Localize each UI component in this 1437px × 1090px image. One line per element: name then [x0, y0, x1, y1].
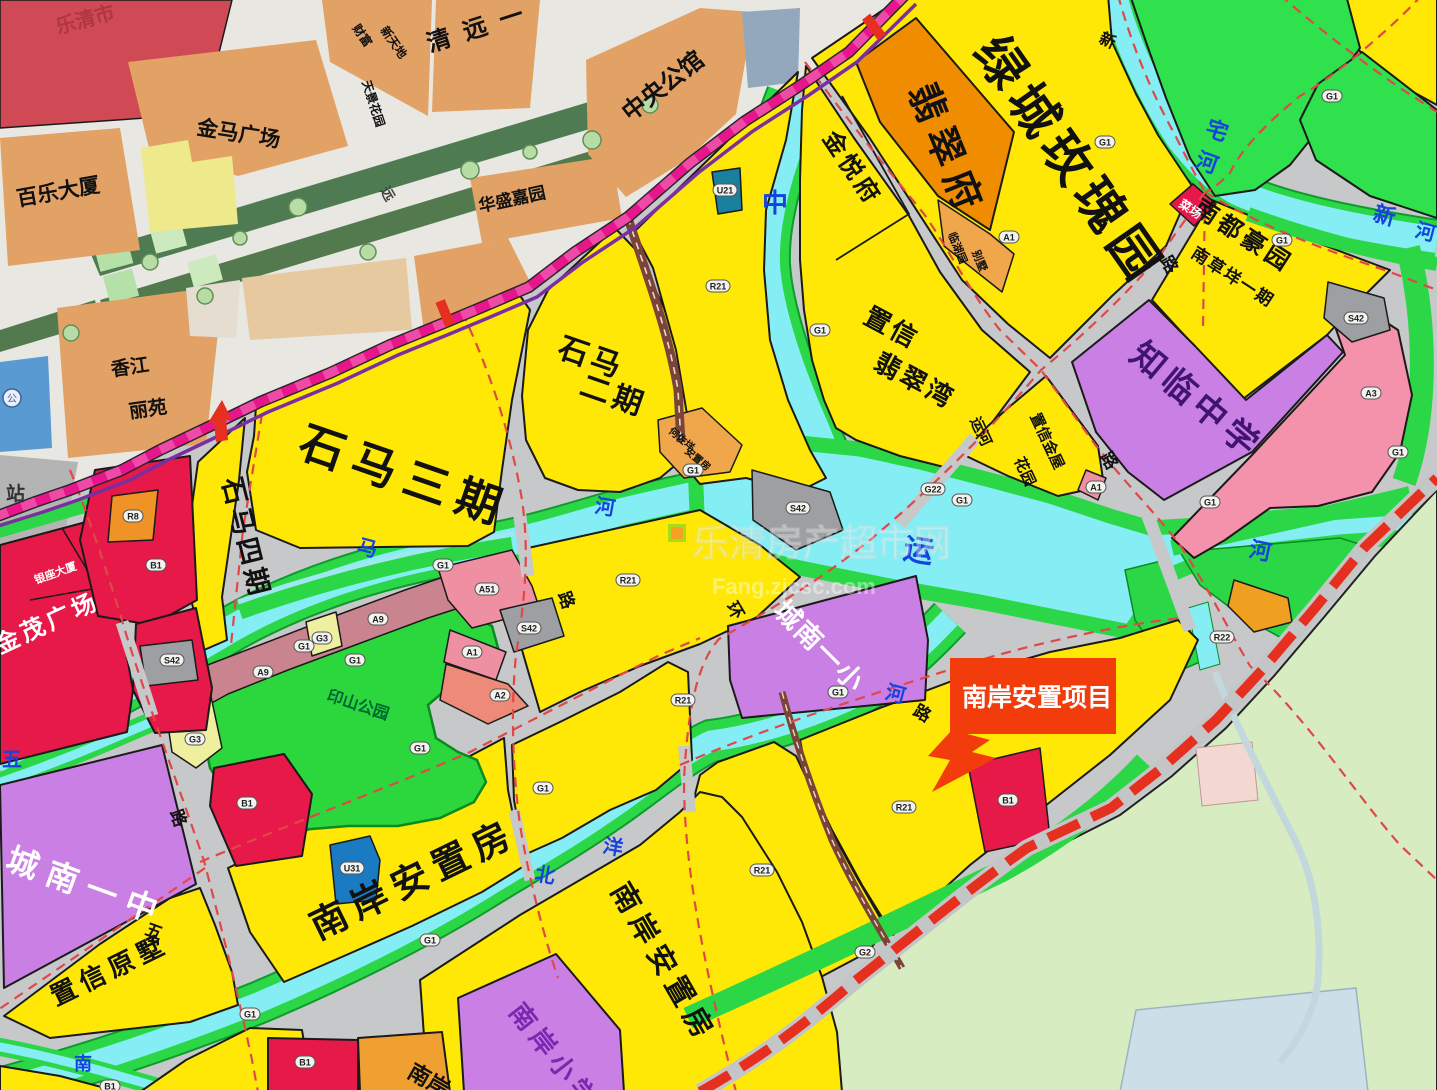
svg-text:中: 中	[762, 188, 788, 218]
svg-text:G1: G1	[437, 561, 449, 571]
svg-text:G1: G1	[414, 744, 426, 754]
svg-text:河: 河	[593, 494, 617, 520]
svg-text:G1: G1	[687, 466, 699, 476]
svg-text:G1: G1	[1276, 236, 1288, 246]
svg-text:R8: R8	[127, 512, 139, 522]
svg-text:A9: A9	[372, 615, 384, 625]
svg-text:S42: S42	[521, 624, 537, 634]
svg-text:G2: G2	[859, 948, 871, 958]
svg-text:B1: B1	[299, 1058, 311, 1068]
svg-text:R21: R21	[710, 282, 727, 292]
svg-text:R21: R21	[675, 696, 692, 706]
svg-text:R22: R22	[1214, 633, 1231, 643]
svg-text:B1: B1	[241, 799, 253, 809]
svg-text:G1: G1	[1099, 138, 1111, 148]
svg-text:G22: G22	[924, 485, 941, 495]
svg-text:R21: R21	[896, 803, 913, 813]
svg-text:A51: A51	[479, 585, 496, 595]
svg-text:S42: S42	[164, 656, 180, 666]
svg-text:B1: B1	[104, 1082, 116, 1090]
svg-text:北: 北	[533, 862, 557, 888]
svg-text:G1: G1	[814, 326, 826, 336]
svg-text:S42: S42	[1348, 314, 1364, 324]
svg-text:R21: R21	[620, 576, 637, 586]
svg-text:G1: G1	[537, 784, 549, 794]
svg-text:G1: G1	[349, 656, 361, 666]
svg-text:五: 五	[2, 749, 22, 771]
svg-text:乐清房产超市网: 乐清房产超市网	[692, 522, 951, 564]
svg-text:G1: G1	[832, 688, 844, 698]
svg-text:A2: A2	[494, 691, 506, 701]
svg-text:G1: G1	[1204, 498, 1216, 508]
svg-text:B1: B1	[1002, 796, 1014, 806]
svg-text:洋: 洋	[601, 833, 625, 860]
svg-text:G1: G1	[1326, 92, 1338, 102]
svg-text:A1: A1	[1090, 483, 1102, 493]
svg-text:南: 南	[74, 1053, 92, 1074]
svg-text:公: 公	[7, 394, 17, 405]
svg-text:G1: G1	[956, 496, 968, 506]
svg-text:G1: G1	[424, 936, 436, 946]
svg-text:R21: R21	[754, 866, 771, 876]
svg-text:南岸安置项目: 南岸安置项目	[962, 683, 1112, 712]
svg-text:G1: G1	[244, 1010, 256, 1020]
svg-text:U31: U31	[344, 864, 361, 874]
svg-text:U21: U21	[717, 186, 734, 196]
svg-text:S42: S42	[790, 504, 806, 514]
svg-text:A1: A1	[1003, 233, 1015, 243]
svg-text:A9: A9	[257, 668, 269, 678]
svg-text:A3: A3	[1365, 389, 1377, 399]
svg-text:G1: G1	[298, 642, 310, 652]
svg-text:G1: G1	[1392, 448, 1404, 458]
svg-text:G3: G3	[189, 735, 201, 745]
svg-text:B1: B1	[150, 561, 162, 571]
svg-text:A1: A1	[466, 648, 478, 658]
svg-text:站: 站	[6, 482, 25, 505]
svg-text:G3: G3	[316, 634, 328, 644]
svg-text:Fang.zjcsc.com: Fang.zjcsc.com	[712, 574, 876, 599]
